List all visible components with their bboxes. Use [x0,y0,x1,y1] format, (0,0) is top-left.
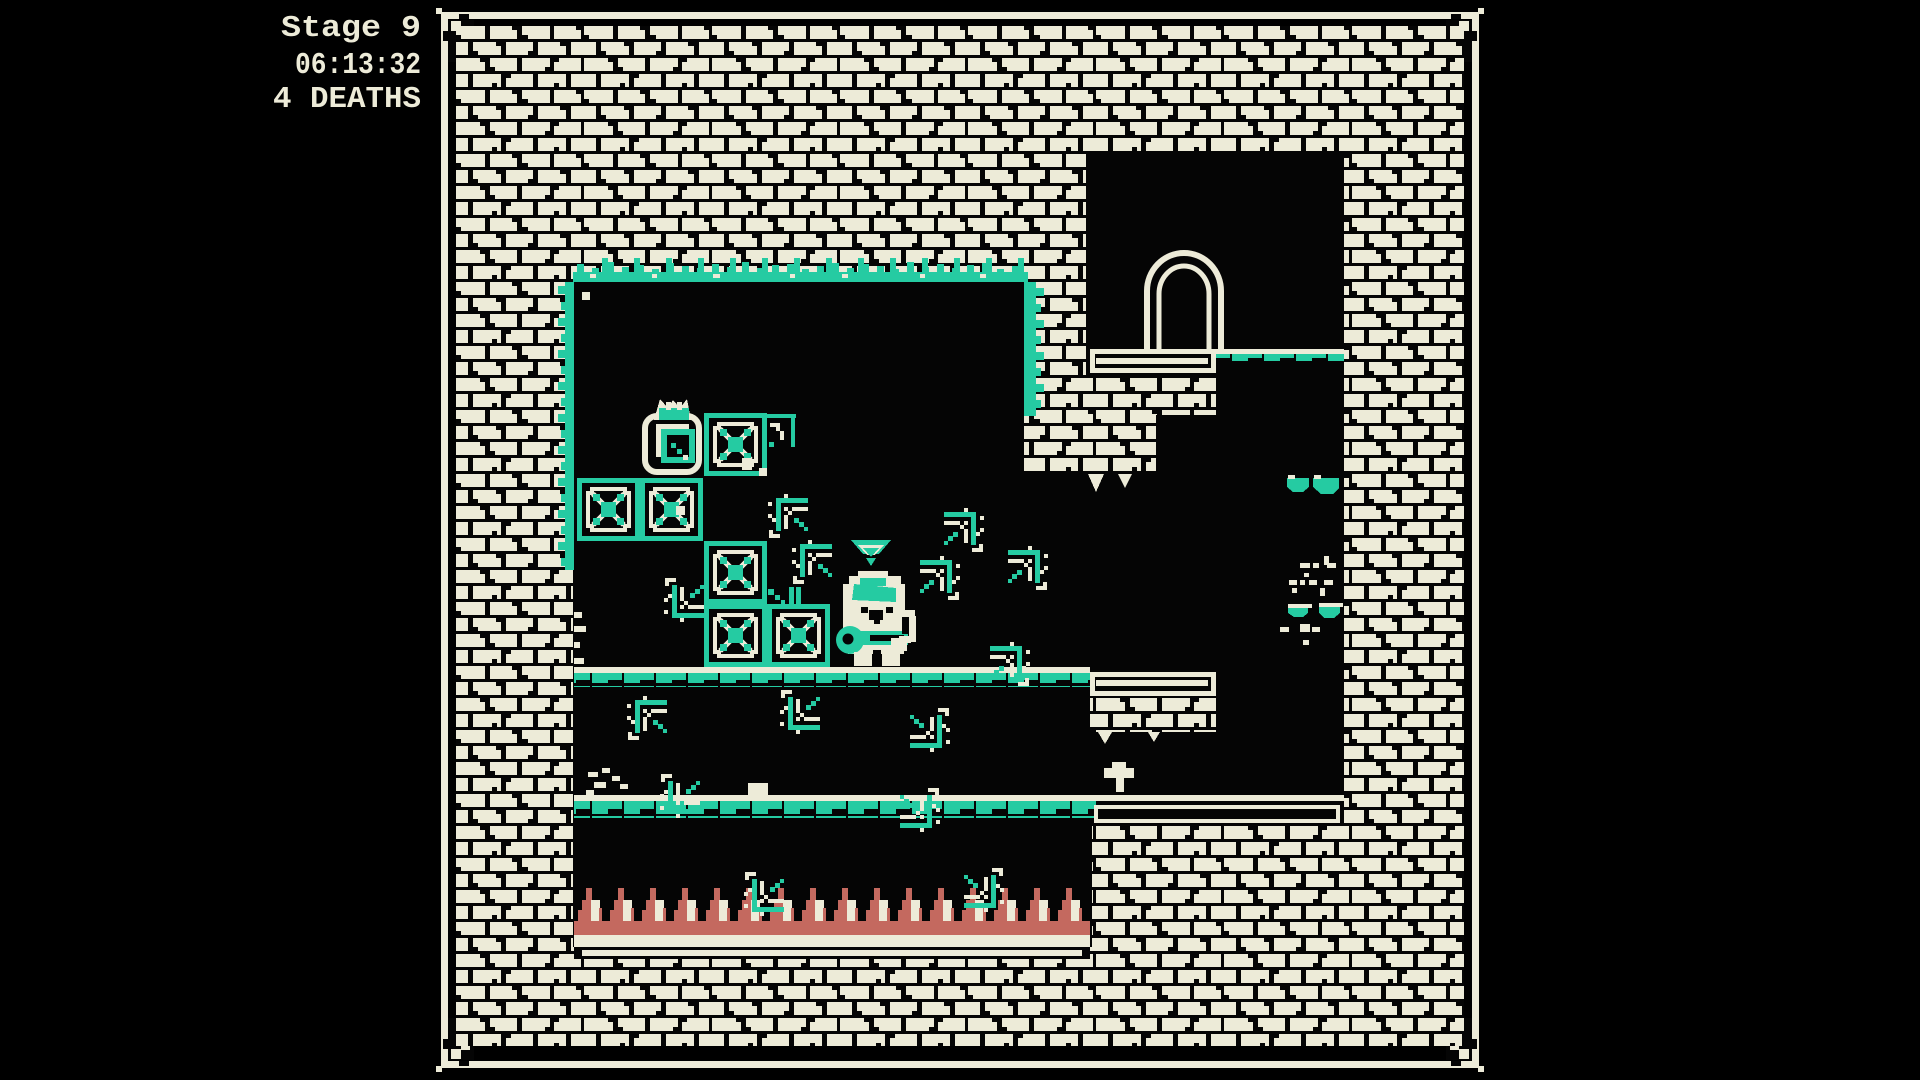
svg-text:Stage 9: Stage 9 [281,11,421,46]
svg-text:06:13:32: 06:13:32 [295,48,421,83]
svg-text:4 DEATHS: 4 DEATHS [273,82,421,117]
